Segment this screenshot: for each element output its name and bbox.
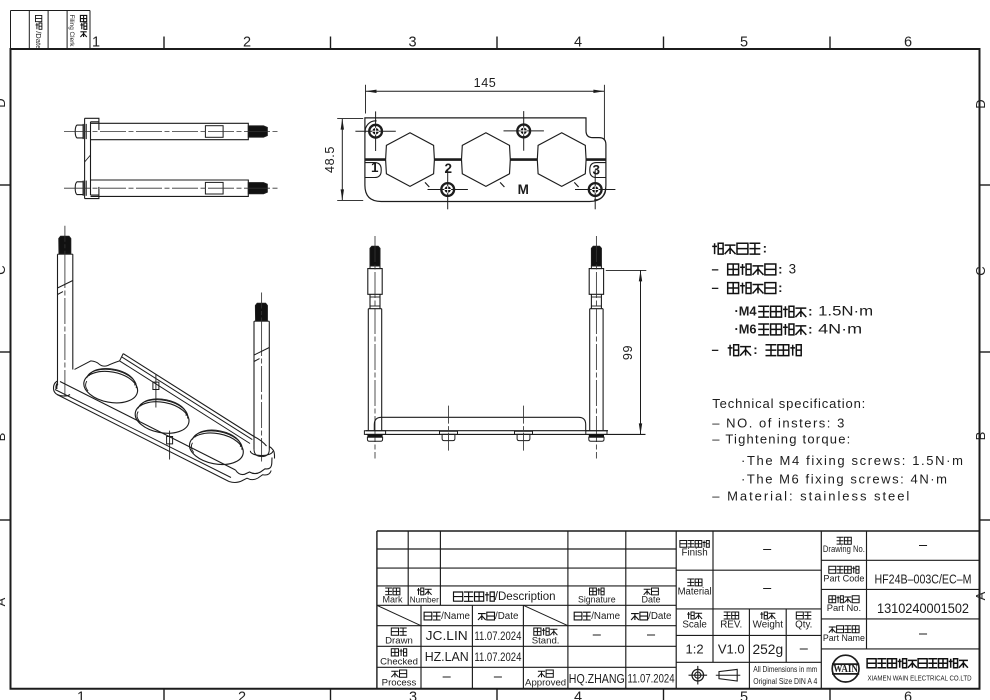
svg-text:–: – xyxy=(763,542,772,558)
svg-text:A: A xyxy=(0,597,8,606)
svg-text:11.07.2024: 11.07.2024 xyxy=(474,629,521,643)
svg-text:2: 2 xyxy=(445,161,453,176)
svg-text:3: 3 xyxy=(789,261,796,276)
svg-text::: : xyxy=(753,342,757,357)
svg-text:Weight: Weight xyxy=(753,620,784,631)
svg-text:–: – xyxy=(712,342,719,357)
svg-text:–: – xyxy=(443,669,452,685)
svg-text:HQ.ZHANG: HQ.ZHANG xyxy=(569,671,625,686)
svg-text:WAIN: WAIN xyxy=(833,664,858,675)
svg-text:/Date: /Date xyxy=(34,31,43,49)
svg-text:Date: Date xyxy=(641,595,660,605)
svg-text:·M6: ·M6 xyxy=(735,321,757,336)
svg-text:Technical specification:: Technical specification: xyxy=(712,396,865,411)
svg-text:Finish: Finish xyxy=(682,548,708,559)
svg-text:–: – xyxy=(593,627,602,643)
svg-text:Signature: Signature xyxy=(578,595,616,605)
svg-text:5: 5 xyxy=(740,690,748,700)
svg-text::: : xyxy=(778,280,782,295)
svg-text:A: A xyxy=(973,591,988,600)
svg-text:C: C xyxy=(0,265,8,274)
svg-text:1: 1 xyxy=(371,160,379,175)
svg-text:–: – xyxy=(763,581,772,597)
svg-text:3: 3 xyxy=(592,163,600,178)
svg-text:11.07.2024: 11.07.2024 xyxy=(628,672,675,686)
svg-text:JC.LIN: JC.LIN xyxy=(426,629,468,643)
svg-text:Part Name: Part Name xyxy=(823,632,865,643)
svg-text:XIAMEN WAIN ELECTRICAL CO.LTD: XIAMEN WAIN ELECTRICAL CO.LTD xyxy=(868,673,972,682)
svg-text:Approved: Approved xyxy=(525,678,566,689)
svg-text:1.5N·m: 1.5N·m xyxy=(818,304,873,319)
svg-text:Material: Material xyxy=(678,586,712,597)
svg-text:Original Size DIN A 4: Original Size DIN A 4 xyxy=(753,676,817,686)
svg-text:1310240001502: 1310240001502 xyxy=(877,601,969,616)
svg-text:99: 99 xyxy=(621,345,635,360)
svg-text:Process: Process xyxy=(382,678,417,689)
svg-text::: : xyxy=(778,261,782,276)
svg-text:4N·m: 4N·m xyxy=(818,321,862,336)
svg-text::: : xyxy=(808,321,812,336)
svg-text::: : xyxy=(808,304,812,319)
svg-text:–: – xyxy=(712,280,719,295)
svg-text:Part No.: Part No. xyxy=(827,602,861,613)
svg-text:HF24B–003C/EC–M: HF24B–003C/EC–M xyxy=(875,571,972,586)
svg-text:–: – xyxy=(647,627,656,643)
svg-text:48.5: 48.5 xyxy=(323,146,337,173)
svg-text:D: D xyxy=(0,98,8,107)
svg-text::: : xyxy=(763,241,767,256)
svg-text:–: – xyxy=(712,261,719,276)
svg-text:/Date: /Date xyxy=(648,611,672,622)
svg-text:HZ.LAN: HZ.LAN xyxy=(425,650,469,664)
svg-text:–: – xyxy=(800,641,809,657)
svg-text:–: – xyxy=(494,669,503,685)
svg-text:Scale: Scale xyxy=(682,620,707,631)
svg-text:All Dimensions in mm: All Dimensions in mm xyxy=(753,664,817,674)
svg-text:– NO. of insters: 3: – NO. of insters: 3 xyxy=(712,415,844,430)
svg-text:5: 5 xyxy=(740,34,748,50)
svg-text:2: 2 xyxy=(243,34,251,50)
svg-text:M: M xyxy=(518,182,529,197)
svg-text:11.07.2024: 11.07.2024 xyxy=(474,650,521,664)
svg-text:6: 6 xyxy=(904,34,912,50)
svg-text:B: B xyxy=(973,432,988,441)
svg-text:252g: 252g xyxy=(752,642,783,657)
svg-text:C: C xyxy=(973,266,988,275)
svg-text:–: – xyxy=(919,626,928,642)
svg-text:/Name: /Name xyxy=(441,611,470,622)
svg-text:4: 4 xyxy=(574,34,582,50)
svg-text:1:2: 1:2 xyxy=(686,641,704,656)
svg-text:145: 145 xyxy=(474,76,497,90)
svg-text:Checked: Checked xyxy=(380,656,418,667)
svg-text:B: B xyxy=(0,433,8,442)
svg-text:4: 4 xyxy=(574,690,582,700)
svg-text:1: 1 xyxy=(92,34,100,50)
svg-text:/Description: /Description xyxy=(495,591,556,603)
svg-text:·M4: ·M4 xyxy=(735,304,758,319)
svg-text:–: – xyxy=(919,538,928,554)
svg-text:V1.0: V1.0 xyxy=(718,641,745,656)
svg-text:D: D xyxy=(973,99,988,108)
svg-text:Part Code: Part Code xyxy=(823,572,864,583)
svg-text:Drawing No.: Drawing No. xyxy=(823,544,865,554)
svg-text:3: 3 xyxy=(409,690,417,700)
svg-text:Drawn: Drawn xyxy=(385,636,413,647)
svg-text:Mark: Mark xyxy=(383,595,403,605)
svg-text:– Material: stainless steel: – Material: stainless steel xyxy=(712,489,909,504)
svg-text:Qty.: Qty. xyxy=(795,620,812,631)
svg-text:1: 1 xyxy=(77,690,85,700)
svg-text:Filing Clerk: Filing Clerk xyxy=(68,15,75,48)
svg-text:6: 6 xyxy=(904,690,912,700)
svg-text:·The M4 fixing screws: 1.5N·m: ·The M4 fixing screws: 1.5N·m xyxy=(741,453,963,468)
svg-text:2: 2 xyxy=(238,690,246,700)
svg-text:REV.: REV. xyxy=(720,620,742,631)
svg-text:Stand.: Stand. xyxy=(532,636,560,647)
svg-text:Number: Number xyxy=(410,594,439,604)
svg-text:/Date: /Date xyxy=(495,611,519,622)
svg-text:3: 3 xyxy=(408,34,416,50)
svg-text:/Name: /Name xyxy=(591,611,620,622)
